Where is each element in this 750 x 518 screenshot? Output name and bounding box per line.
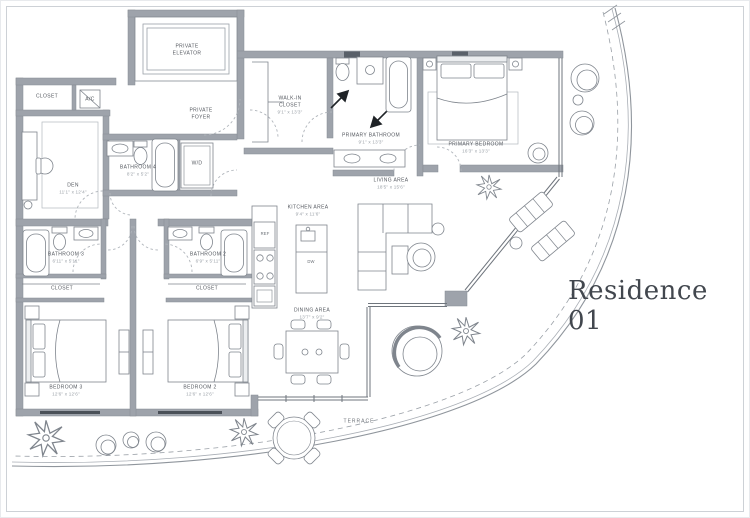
room-label-bedroom-2: BEDROOM 2 12'6" x 12'6" bbox=[175, 385, 225, 398]
room-name: BATHROOM 4 bbox=[116, 165, 160, 172]
room-dims: 9'4" x 11'6" bbox=[281, 211, 335, 217]
room-name: WALK-IN CLOSET bbox=[273, 95, 307, 109]
room-name: A/C bbox=[78, 97, 102, 104]
room-dims: 9'1" x 13'3" bbox=[336, 139, 406, 145]
floorplan-drawing bbox=[0, 0, 750, 518]
room-name: BATHROOM 2 bbox=[186, 252, 230, 259]
room-label-bathroom-4: BATHROOM 4 8'2" x 5'2" bbox=[116, 165, 160, 178]
room-label-living-area: LIVING AREA 18'5" x 15'6" bbox=[361, 178, 421, 191]
living-furniture bbox=[358, 204, 444, 290]
room-dims: 16'3" x 13'3" bbox=[441, 148, 511, 154]
label-ref: REF bbox=[255, 231, 275, 237]
room-name: LIVING AREA bbox=[361, 178, 421, 185]
room-label-private-elevator: PRIVATE ELEVATOR bbox=[165, 43, 209, 57]
room-label-closet-2: CLOSET bbox=[187, 286, 227, 293]
room-label-bathroom-2: BATHROOM 2 6'9" x 5'11" bbox=[186, 252, 230, 265]
room-dims: 11'1" x 12'4" bbox=[48, 189, 98, 195]
room-name: TERRACE bbox=[329, 419, 389, 426]
room-name: CLOSET bbox=[187, 286, 227, 293]
room-label-terrace: TERRACE bbox=[329, 419, 389, 426]
room-label-private-foyer: PRIVATE FOYER bbox=[186, 107, 216, 121]
room-name: BEDROOM 2 bbox=[175, 385, 225, 392]
room-name: PRIVATE ELEVATOR bbox=[165, 43, 209, 57]
room-dims: 12'6" x 12'6" bbox=[41, 391, 91, 397]
room-dims: 6'9" x 5'11" bbox=[186, 258, 230, 264]
room-name: CLOSET bbox=[42, 286, 82, 293]
bedroom2-furniture bbox=[168, 306, 249, 396]
room-name: KITCHEN AREA bbox=[281, 205, 335, 212]
appliance-name: REF bbox=[255, 231, 275, 237]
room-name: BATHROOM 3 bbox=[44, 252, 88, 259]
room-dims: 9'1" x 13'3" bbox=[273, 109, 307, 115]
room-dims: 6'11" x 5'11" bbox=[44, 258, 88, 264]
residence-title: Residence 01 bbox=[568, 276, 738, 336]
label-dw: DW bbox=[301, 259, 321, 265]
room-name: PRIMARY BATHROOM bbox=[336, 133, 406, 140]
room-name: BEDROOM 3 bbox=[41, 385, 91, 392]
room-label-primary-bathroom: PRIMARY BATHROOM 9'1" x 13'3" bbox=[336, 133, 406, 146]
room-label-closet-3: CLOSET bbox=[42, 286, 82, 293]
room-name: W/D bbox=[185, 161, 209, 168]
room-label-dining-area: DINING AREA 13'7" x 9'2" bbox=[285, 308, 339, 321]
room-name: DINING AREA bbox=[285, 308, 339, 315]
appliance-name: DW bbox=[301, 259, 321, 265]
room-label-bathroom-3: BATHROOM 3 6'11" x 5'11" bbox=[44, 252, 88, 265]
bedroom3-furniture bbox=[25, 306, 106, 396]
room-name: CLOSET bbox=[27, 94, 67, 101]
dining-furniture bbox=[274, 320, 349, 384]
room-dims: 18'5" x 15'6" bbox=[361, 184, 421, 190]
room-dims: 12'6" x 12'6" bbox=[175, 391, 225, 397]
room-label-wd: W/D bbox=[185, 161, 209, 168]
room-name: PRIVATE FOYER bbox=[186, 107, 216, 121]
room-label-primary-bedroom: PRIMARY BEDROOM 16'3" x 13'3" bbox=[441, 142, 511, 155]
room-label-closet-den: CLOSET bbox=[27, 94, 67, 101]
room-dims: 8'2" x 5'2" bbox=[116, 171, 160, 177]
room-label-bedroom-3: BEDROOM 3 12'6" x 12'6" bbox=[41, 385, 91, 398]
kitchen-fixtures bbox=[252, 206, 327, 308]
room-label-ac: A/C bbox=[78, 97, 102, 104]
room-label-kitchen-area: KITCHEN AREA 9'4" x 11'6" bbox=[281, 205, 335, 218]
room-name: DEN bbox=[48, 183, 98, 190]
room-name: PRIMARY BEDROOM bbox=[441, 142, 511, 149]
room-label-walk-in-closet: WALK-IN CLOSET 9'1" x 13'3" bbox=[273, 95, 307, 114]
room-dims: 13'7" x 9'2" bbox=[285, 314, 339, 320]
door-arrows bbox=[331, 91, 388, 127]
floorplan-page: PRIVATE ELEVATOR PRIVATE FOYER CLOSET A/… bbox=[0, 0, 750, 518]
primary-bathroom-fixtures bbox=[334, 57, 411, 167]
room-label-den: DEN 11'1" x 12'4" bbox=[48, 183, 98, 196]
